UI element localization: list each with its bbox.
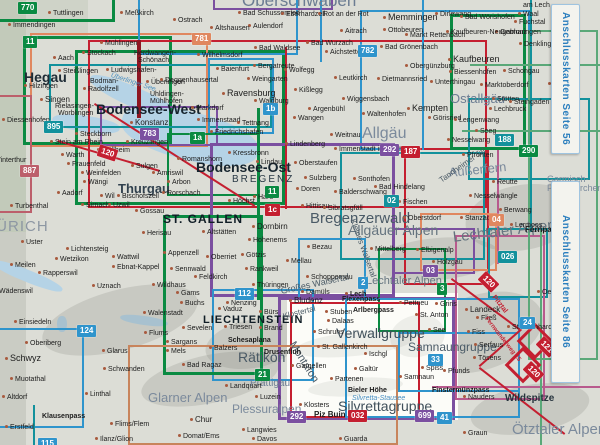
town-label: Einsiedeln — [14, 319, 51, 326]
town-label: Waal — [518, 11, 539, 18]
town-label: Davos — [252, 436, 277, 443]
town-label: Biessenhofen — [449, 69, 496, 76]
town-label: Stockach — [82, 50, 116, 57]
town-label: Walenstadt — [143, 310, 183, 317]
region-label: Lechtaler Alpen — [366, 276, 442, 287]
region-label: Allgäu — [362, 126, 406, 142]
sheet-number-badge[interactable]: 290 — [519, 145, 538, 157]
town-label: Diessenhofen — [2, 117, 50, 124]
town-label: Rot an der Rot — [318, 11, 369, 18]
town-label: Lermoos — [510, 222, 542, 229]
town-label: Linthal — [85, 391, 111, 398]
town-label: Hohenems — [248, 237, 287, 244]
town-label: Romanshorn — [177, 156, 222, 163]
sheet-number-badge[interactable]: 115 — [38, 438, 57, 445]
town-label: Schoppernau — [306, 274, 353, 281]
town-label: Vaduz — [218, 306, 242, 313]
sheet-number-badge[interactable]: 292 — [380, 144, 399, 156]
sheet-number-badge[interactable]: 33 — [428, 354, 443, 366]
town-label: Weinfelden — [81, 170, 121, 177]
sheet-number-badge[interactable]: 03 — [423, 265, 438, 277]
town-label: Dietmannsried — [377, 76, 427, 83]
town-label: Wildhaus — [152, 282, 186, 289]
town-label: Oberiberg — [25, 340, 61, 347]
town-label: Dalaas — [327, 318, 354, 325]
town-label: Wetzikon — [55, 256, 89, 263]
town-label: Nesselwang — [447, 137, 490, 144]
region-label: Ötztaler Alpen — [512, 422, 600, 437]
town-label: Finstermünzpass — [432, 387, 490, 394]
sheet-number-badge[interactable]: 782 — [358, 45, 377, 57]
town-label: Wolfegg — [284, 67, 315, 74]
sheet-number-badge[interactable]: 112 — [235, 288, 254, 300]
town-label: Fischen — [398, 199, 428, 206]
town-label: Luzein — [255, 394, 281, 401]
town-label: Flums — [144, 330, 168, 337]
town-label: Flexenpass — [342, 296, 380, 303]
town-label: Galtür — [354, 366, 378, 373]
town-label: Flims/Flem — [110, 421, 149, 428]
town-label: Sulgen — [131, 163, 158, 170]
town-label: Arbon — [167, 179, 191, 186]
town-label: Kaufbeuren-Neugablonz — [446, 29, 527, 36]
town-label: Doren — [296, 186, 320, 193]
town-label: Sirnach — [81, 202, 110, 209]
town-label: Rankweil — [245, 266, 278, 273]
region-label: Verwallgruppe — [336, 326, 425, 340]
sheet-number-badge[interactable]: 02 — [384, 195, 399, 207]
town-label: Steckborn — [75, 131, 112, 138]
town-label: Aitrach — [340, 28, 367, 35]
town-label: Rapperswil — [38, 270, 78, 277]
town-label: Muotathal — [10, 376, 46, 383]
sheet-number-badge[interactable]: 1c — [265, 204, 280, 216]
town-label: Wiggensbach — [342, 96, 389, 103]
town-label: Bad Hindelang — [374, 184, 425, 191]
town-label: Sulzberg — [304, 175, 337, 182]
town-label: Uster — [21, 239, 43, 246]
town-label: Dornbirn — [252, 223, 288, 231]
town-label: Rielasingen- — [55, 103, 94, 110]
sheet-number-badge[interactable]: 2 — [358, 277, 368, 289]
town-label: Altstätten — [202, 229, 236, 236]
town-label: Kaufbeuren — [448, 55, 500, 64]
town-label: Serfaus — [474, 342, 503, 349]
town-label: Bischofszell — [117, 193, 159, 200]
town-label: Tettnang — [237, 120, 269, 127]
town-label: Immendingen — [8, 22, 55, 29]
town-label: Uznach — [92, 283, 121, 290]
town-label: Winterthur — [0, 157, 26, 164]
town-label: Ravensburg — [222, 89, 276, 98]
town-label: Mellau — [286, 258, 312, 265]
town-label: Erstfeld — [5, 424, 34, 431]
town-label: Herdwangen- — [134, 50, 176, 57]
town-label: Steißlingen — [58, 68, 98, 75]
sheet-number-badge[interactable]: 11 — [265, 186, 279, 198]
town-label: Schwyz — [5, 354, 41, 363]
town-label: Sennwald — [170, 266, 206, 273]
region-label: BREGENZ — [232, 175, 294, 185]
town-label: Lindau — [256, 159, 282, 166]
town-label: Waltenhofen — [362, 111, 406, 118]
town-label: Friedrichshafen — [210, 129, 263, 136]
town-label: am Lech — [523, 2, 550, 9]
town-label: Schwanden — [103, 366, 145, 373]
sheet-number-badge[interactable]: 24 — [520, 317, 535, 329]
region-label: ZÜRICH — [0, 219, 49, 234]
region-label: Wildspitze — [505, 394, 554, 404]
town-label: Stein am Rhein — [50, 139, 103, 146]
town-label: Mühlhofen — [150, 98, 183, 105]
town-label: Schönach — [138, 57, 169, 64]
town-label: Ostrach — [173, 17, 203, 24]
town-label: Meilen — [10, 262, 36, 269]
sheet-number-badge[interactable]: 895 — [44, 121, 63, 133]
town-label: Höchst — [228, 198, 255, 205]
town-label: Bad Grönenbach — [380, 44, 438, 51]
town-label: Bad Wurzach — [306, 40, 353, 47]
town-label: Lechbruck — [489, 106, 526, 113]
grid-line — [470, 64, 600, 66]
region-label: ST. GALLEN — [163, 213, 243, 225]
town-label: Fiss — [467, 329, 485, 336]
town-label: Bad Wörishofen — [460, 14, 515, 21]
town-label: Oberstdorf — [403, 215, 441, 222]
sheet-number-badge[interactable]: 41 — [437, 412, 452, 424]
town-label: Nesselwängle — [469, 193, 518, 200]
town-label: Glarus — [102, 348, 128, 355]
town-label: Lengenwang — [454, 117, 499, 124]
town-label: Drusenfluh — [264, 349, 301, 356]
town-label: Berwang — [499, 207, 532, 214]
town-label: Wangen — [293, 115, 324, 122]
town-label: Domat/Ems — [178, 433, 220, 440]
sheet-number-badge[interactable]: 026 — [498, 251, 517, 263]
town-label: Seeg — [475, 128, 496, 135]
town-label: Sibratsgfäll — [323, 205, 363, 212]
town-label: Bludenz — [289, 297, 323, 305]
sheet-number-badge[interactable]: 04 — [489, 214, 504, 226]
town-label: Triesen — [224, 324, 252, 331]
town-label: Chur — [190, 416, 212, 424]
town-label: Frauenfeld — [67, 161, 105, 168]
town-label: Spiss — [421, 365, 443, 372]
town-label: Konstanz — [130, 119, 168, 127]
town-label: Kressbronn — [228, 150, 269, 157]
sidebar-tab-label: Anschlusskarten Seite 56 — [560, 12, 571, 145]
town-label: Pfronten — [462, 152, 493, 159]
town-label: Mühlingen — [100, 40, 137, 47]
town-label: Sevelen — [182, 325, 212, 332]
sheet-number-badge[interactable]: 188 — [495, 134, 514, 146]
town-label: St. Gallenkirch — [317, 344, 368, 351]
sheet-number-badge[interactable]: 292 — [287, 411, 306, 423]
town-label: Uzwil — [108, 202, 130, 209]
sheet-number-badge[interactable]: 887 — [20, 165, 39, 177]
town-label: Wädenswil — [0, 288, 33, 295]
town-label: Tösens — [473, 355, 501, 362]
town-label: Appenzell — [163, 250, 199, 257]
sheet-number-badge[interactable]: 3 — [437, 283, 447, 295]
town-label: Pettneu — [399, 300, 428, 307]
town-label: Bezau — [307, 244, 332, 251]
town-label: Schesaplana — [228, 337, 271, 344]
town-label: Samnaun — [399, 374, 434, 381]
town-label: Steingaden — [509, 99, 549, 106]
sheet-outline[interactable] — [0, 95, 32, 213]
town-label: Piz Buin — [314, 411, 346, 419]
town-label: Uhldingen- — [150, 91, 184, 98]
town-label: Bad Waldsee — [254, 45, 300, 52]
town-label: Altshausen — [210, 25, 250, 32]
town-label: Tuttlingen — [48, 10, 83, 17]
water-label: Silvretta-Stausee — [352, 395, 405, 402]
town-label: Wängi — [83, 179, 108, 186]
town-label: Weingarten — [247, 76, 288, 83]
grid-line — [422, 0, 424, 150]
town-label: Nauders — [463, 394, 494, 401]
town-label: Sonthofen — [353, 176, 390, 183]
town-label: Landeck — [465, 306, 500, 314]
town-label: Sargans — [166, 339, 197, 346]
town-label: Feldkirch — [194, 274, 227, 281]
town-label: Fuchstal — [514, 19, 545, 26]
town-label: Mels — [166, 348, 186, 355]
town-label: Partenen — [330, 376, 363, 383]
town-label: Bürs — [259, 309, 278, 316]
town-label: Schongau — [503, 68, 540, 75]
town-label: See — [428, 327, 445, 334]
sheet-number-badge[interactable]: 1a — [190, 132, 205, 144]
town-label: Immenstaad — [197, 117, 241, 124]
town-label: Aach — [53, 55, 74, 62]
sidebar-tab-anschlusskarten[interactable]: Anschlusskarten Seite 56 — [551, 4, 580, 154]
town-label: Klausenpass — [42, 413, 85, 420]
town-label: Deggenhausertal — [160, 77, 218, 84]
town-label: Reutte — [492, 179, 518, 186]
town-label: Thüringen — [252, 282, 289, 289]
map-index-canvas: OberschwabenHegauBodensee-WestBodensee-O… — [0, 0, 600, 445]
town-label: Meßkirch — [120, 10, 154, 17]
town-label: Obergünzburg — [405, 63, 455, 70]
town-label: Langwies — [242, 427, 277, 434]
region-label: Oberschwaben — [242, 0, 356, 9]
town-label: Argenbühl — [308, 106, 345, 113]
sheet-number-badge[interactable]: 032 — [348, 410, 367, 422]
town-label: Bieler Höhe — [348, 387, 387, 394]
sheet-number-badge[interactable]: 781 — [192, 33, 211, 45]
sidebar-tab-label: Anschlusskarten Seite 86 — [560, 215, 571, 348]
town-label: Grins — [435, 301, 457, 308]
town-label: Lichtensteig — [66, 246, 108, 253]
town-label: Hilzingen — [24, 83, 58, 90]
town-label: St. Anton — [415, 312, 448, 319]
town-label: Götzis — [241, 252, 266, 259]
town-label: Pfunds — [443, 368, 470, 375]
town-label: Graun — [463, 430, 487, 437]
town-label: Leutkirch — [334, 75, 367, 82]
region-label: Glarner Alpen — [148, 391, 228, 404]
town-label: Markdorf — [191, 105, 224, 112]
town-label: Marktoberdorf — [480, 82, 529, 89]
town-label: Ilanz/Glion — [95, 436, 133, 443]
town-label: Aadorf — [57, 190, 83, 197]
sheet-number-badge[interactable]: 783 — [140, 128, 159, 140]
town-label: Klosters — [299, 402, 329, 409]
town-label: Aulendorf — [248, 23, 283, 30]
town-label: Gossau — [135, 208, 164, 215]
region-label: Bodensee-West — [96, 102, 201, 116]
town-label: Buchs — [180, 300, 204, 307]
town-label: Worblingen — [58, 110, 93, 117]
sheet-number-badge[interactable]: 124 — [77, 325, 96, 337]
town-label: Wattwil — [112, 254, 139, 261]
town-label: Mittelberg — [370, 246, 406, 253]
town-label: Wilhelmsdorf — [197, 52, 242, 59]
town-label: Brand — [259, 325, 283, 332]
town-label: Kreuzlingen — [126, 139, 168, 146]
town-label: Turbenthal — [10, 203, 48, 210]
town-label: Rorschach — [162, 190, 200, 197]
sidebar-tab-anschlusskarten[interactable]: Anschlusskarten Seite 86 — [551, 181, 580, 383]
town-label: Altdorf — [2, 394, 27, 401]
town-label: Ischgl — [364, 351, 387, 358]
region-label: Bregenzerwald — [310, 211, 410, 226]
town-label: Landquart — [225, 383, 262, 390]
town-label: Guarda — [339, 436, 367, 443]
town-label: Kempten — [407, 104, 448, 113]
town-label: Kißlegg — [294, 87, 323, 94]
town-label: Oberstaufen — [294, 160, 338, 167]
town-label: Elbigenalp — [416, 247, 454, 254]
town-label: Herisau — [142, 230, 171, 237]
town-label: Baienfurt — [216, 66, 249, 73]
town-label: Balzers — [209, 345, 237, 352]
town-label: Ebnat-Kappel — [112, 264, 159, 271]
town-label: Gargellen — [291, 363, 326, 370]
town-label: Schruns — [313, 329, 344, 336]
sheet-number-badge[interactable]: 770 — [18, 2, 37, 14]
town-label: Weitnau — [330, 132, 361, 139]
town-label: Warth — [61, 152, 84, 159]
town-label: Arlbergpass — [353, 307, 394, 314]
sheet-number-badge[interactable]: 11 — [23, 36, 37, 48]
town-label: Stuben — [325, 309, 352, 316]
sheet-number-badge[interactable]: 1b — [263, 103, 278, 115]
town-label: Radolfzell — [83, 86, 119, 93]
sheet-number-badge[interactable]: 21 — [255, 369, 270, 381]
sheet-number-badge[interactable]: 699 — [415, 410, 434, 422]
town-label: Amriswil — [152, 170, 183, 177]
sheet-number-badge[interactable]: 187 — [401, 146, 420, 158]
town-label: Wil — [100, 193, 115, 200]
town-label: Lindenberg — [285, 141, 325, 148]
town-label: Bad Ragaz — [182, 362, 222, 369]
town-label: Oberriet — [206, 254, 236, 261]
town-label: Unterthingau — [430, 79, 475, 86]
town-label: Gams — [176, 290, 200, 297]
town-label: Damüls — [301, 289, 330, 296]
town-label: Memmingen — [383, 13, 438, 22]
